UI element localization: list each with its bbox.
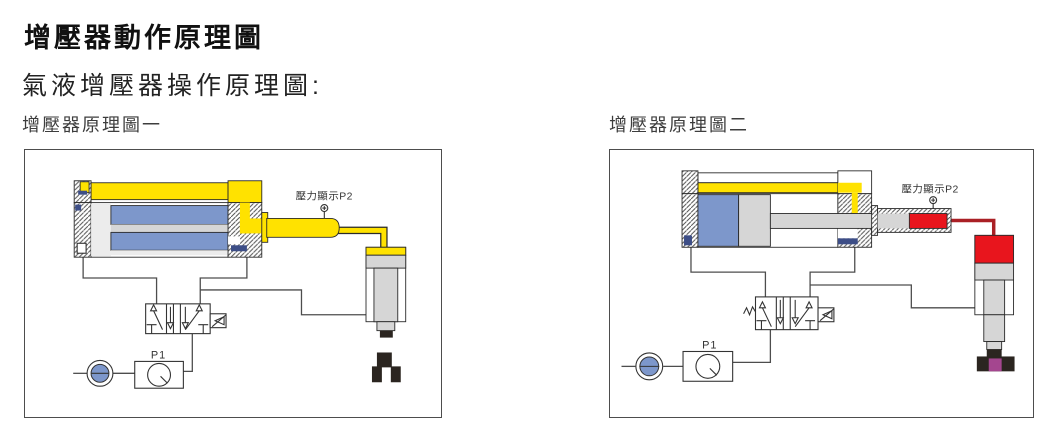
sleeve-flange bbox=[872, 206, 878, 236]
work-cylinder bbox=[366, 247, 406, 382]
diagram2-caption: 增壓器原理圖二 bbox=[609, 111, 749, 137]
seal bbox=[231, 245, 247, 251]
rod-tip bbox=[380, 331, 393, 338]
pressure-gauge-p2: 壓力顯示P2 bbox=[296, 190, 353, 219]
regulator-p1: P1 bbox=[135, 349, 184, 388]
work-cylinder bbox=[975, 235, 1015, 371]
end-cap-top-left bbox=[682, 171, 698, 194]
output-rod bbox=[267, 218, 339, 237]
rod-stub bbox=[377, 322, 395, 331]
seal bbox=[684, 235, 692, 245]
air-source-icon bbox=[636, 353, 663, 380]
diagram2-schematic: 壓力顯示P2 bbox=[610, 150, 1033, 417]
work-piston-rod bbox=[984, 280, 1005, 315]
seal bbox=[838, 238, 858, 244]
regulator-p1: P1 bbox=[683, 340, 733, 382]
air-source-icon bbox=[87, 360, 113, 386]
solenoid-icon bbox=[818, 308, 834, 322]
cylinder-wall bbox=[111, 250, 228, 255]
oil-output-pipe bbox=[335, 230, 384, 248]
diagram1-schematic: 壓力顯示P2 bbox=[25, 150, 441, 417]
pressurized-chamber bbox=[975, 235, 1014, 263]
oil-reservoir bbox=[698, 183, 838, 193]
rod-extension bbox=[984, 315, 1005, 342]
pressure-gauge-p2: 壓力顯示P2 bbox=[902, 183, 959, 209]
reservoir-air-gap bbox=[698, 173, 838, 183]
workpiece bbox=[989, 358, 1002, 371]
cap-notch bbox=[228, 236, 240, 244]
page: 增壓器動作原理圖 氣液增壓器操作原理圖: 增壓器原理圖一 增壓器原理圖二 bbox=[0, 0, 1059, 448]
diagram1-frame: 壓力顯示P2 bbox=[24, 149, 442, 418]
oil-reservoir-head bbox=[228, 181, 262, 203]
directional-valve bbox=[744, 297, 834, 330]
gauge-label: 壓力顯示P2 bbox=[296, 190, 353, 203]
piston-plate bbox=[91, 204, 111, 257]
oil-in-head bbox=[838, 183, 862, 193]
air-chamber-bottom bbox=[111, 232, 228, 250]
directional-valve bbox=[146, 304, 226, 334]
clamp-tool bbox=[977, 356, 1015, 371]
page-title: 增壓器動作原理圖 bbox=[24, 16, 264, 55]
piston-head bbox=[739, 195, 771, 247]
oil-output-pipe bbox=[945, 220, 994, 237]
work-piston bbox=[366, 255, 406, 268]
oil-channel-vertical bbox=[852, 193, 858, 214]
rod-taper bbox=[987, 342, 1002, 350]
solenoid-icon bbox=[210, 314, 226, 328]
diagram1-caption: 增壓器原理圖一 bbox=[22, 111, 162, 137]
seal bbox=[78, 191, 87, 195]
oil-cap bbox=[366, 247, 406, 255]
regulator-label: P1 bbox=[151, 349, 166, 361]
page-subtitle: 氣液增壓器操作原理圖: bbox=[22, 66, 323, 102]
work-piston-rod bbox=[374, 268, 398, 322]
clamp-tool bbox=[372, 352, 401, 382]
cap-notch bbox=[838, 228, 858, 238]
seal bbox=[75, 205, 81, 211]
work-piston bbox=[975, 263, 1014, 280]
diagram2-frame: 壓力顯示P2 bbox=[609, 149, 1034, 418]
oil-reservoir bbox=[91, 183, 228, 200]
air-piston bbox=[698, 195, 739, 247]
gauge-label: 壓力顯示P2 bbox=[902, 183, 959, 196]
rod-tip bbox=[987, 350, 1002, 358]
piston-rod-band bbox=[111, 224, 228, 232]
air-port bbox=[77, 243, 86, 253]
spring-icon bbox=[744, 307, 756, 315]
booster-cylinder bbox=[682, 171, 951, 247]
air-chamber-top bbox=[111, 206, 228, 225]
pressurized-oil bbox=[909, 214, 947, 229]
regulator-label: P1 bbox=[702, 340, 717, 352]
